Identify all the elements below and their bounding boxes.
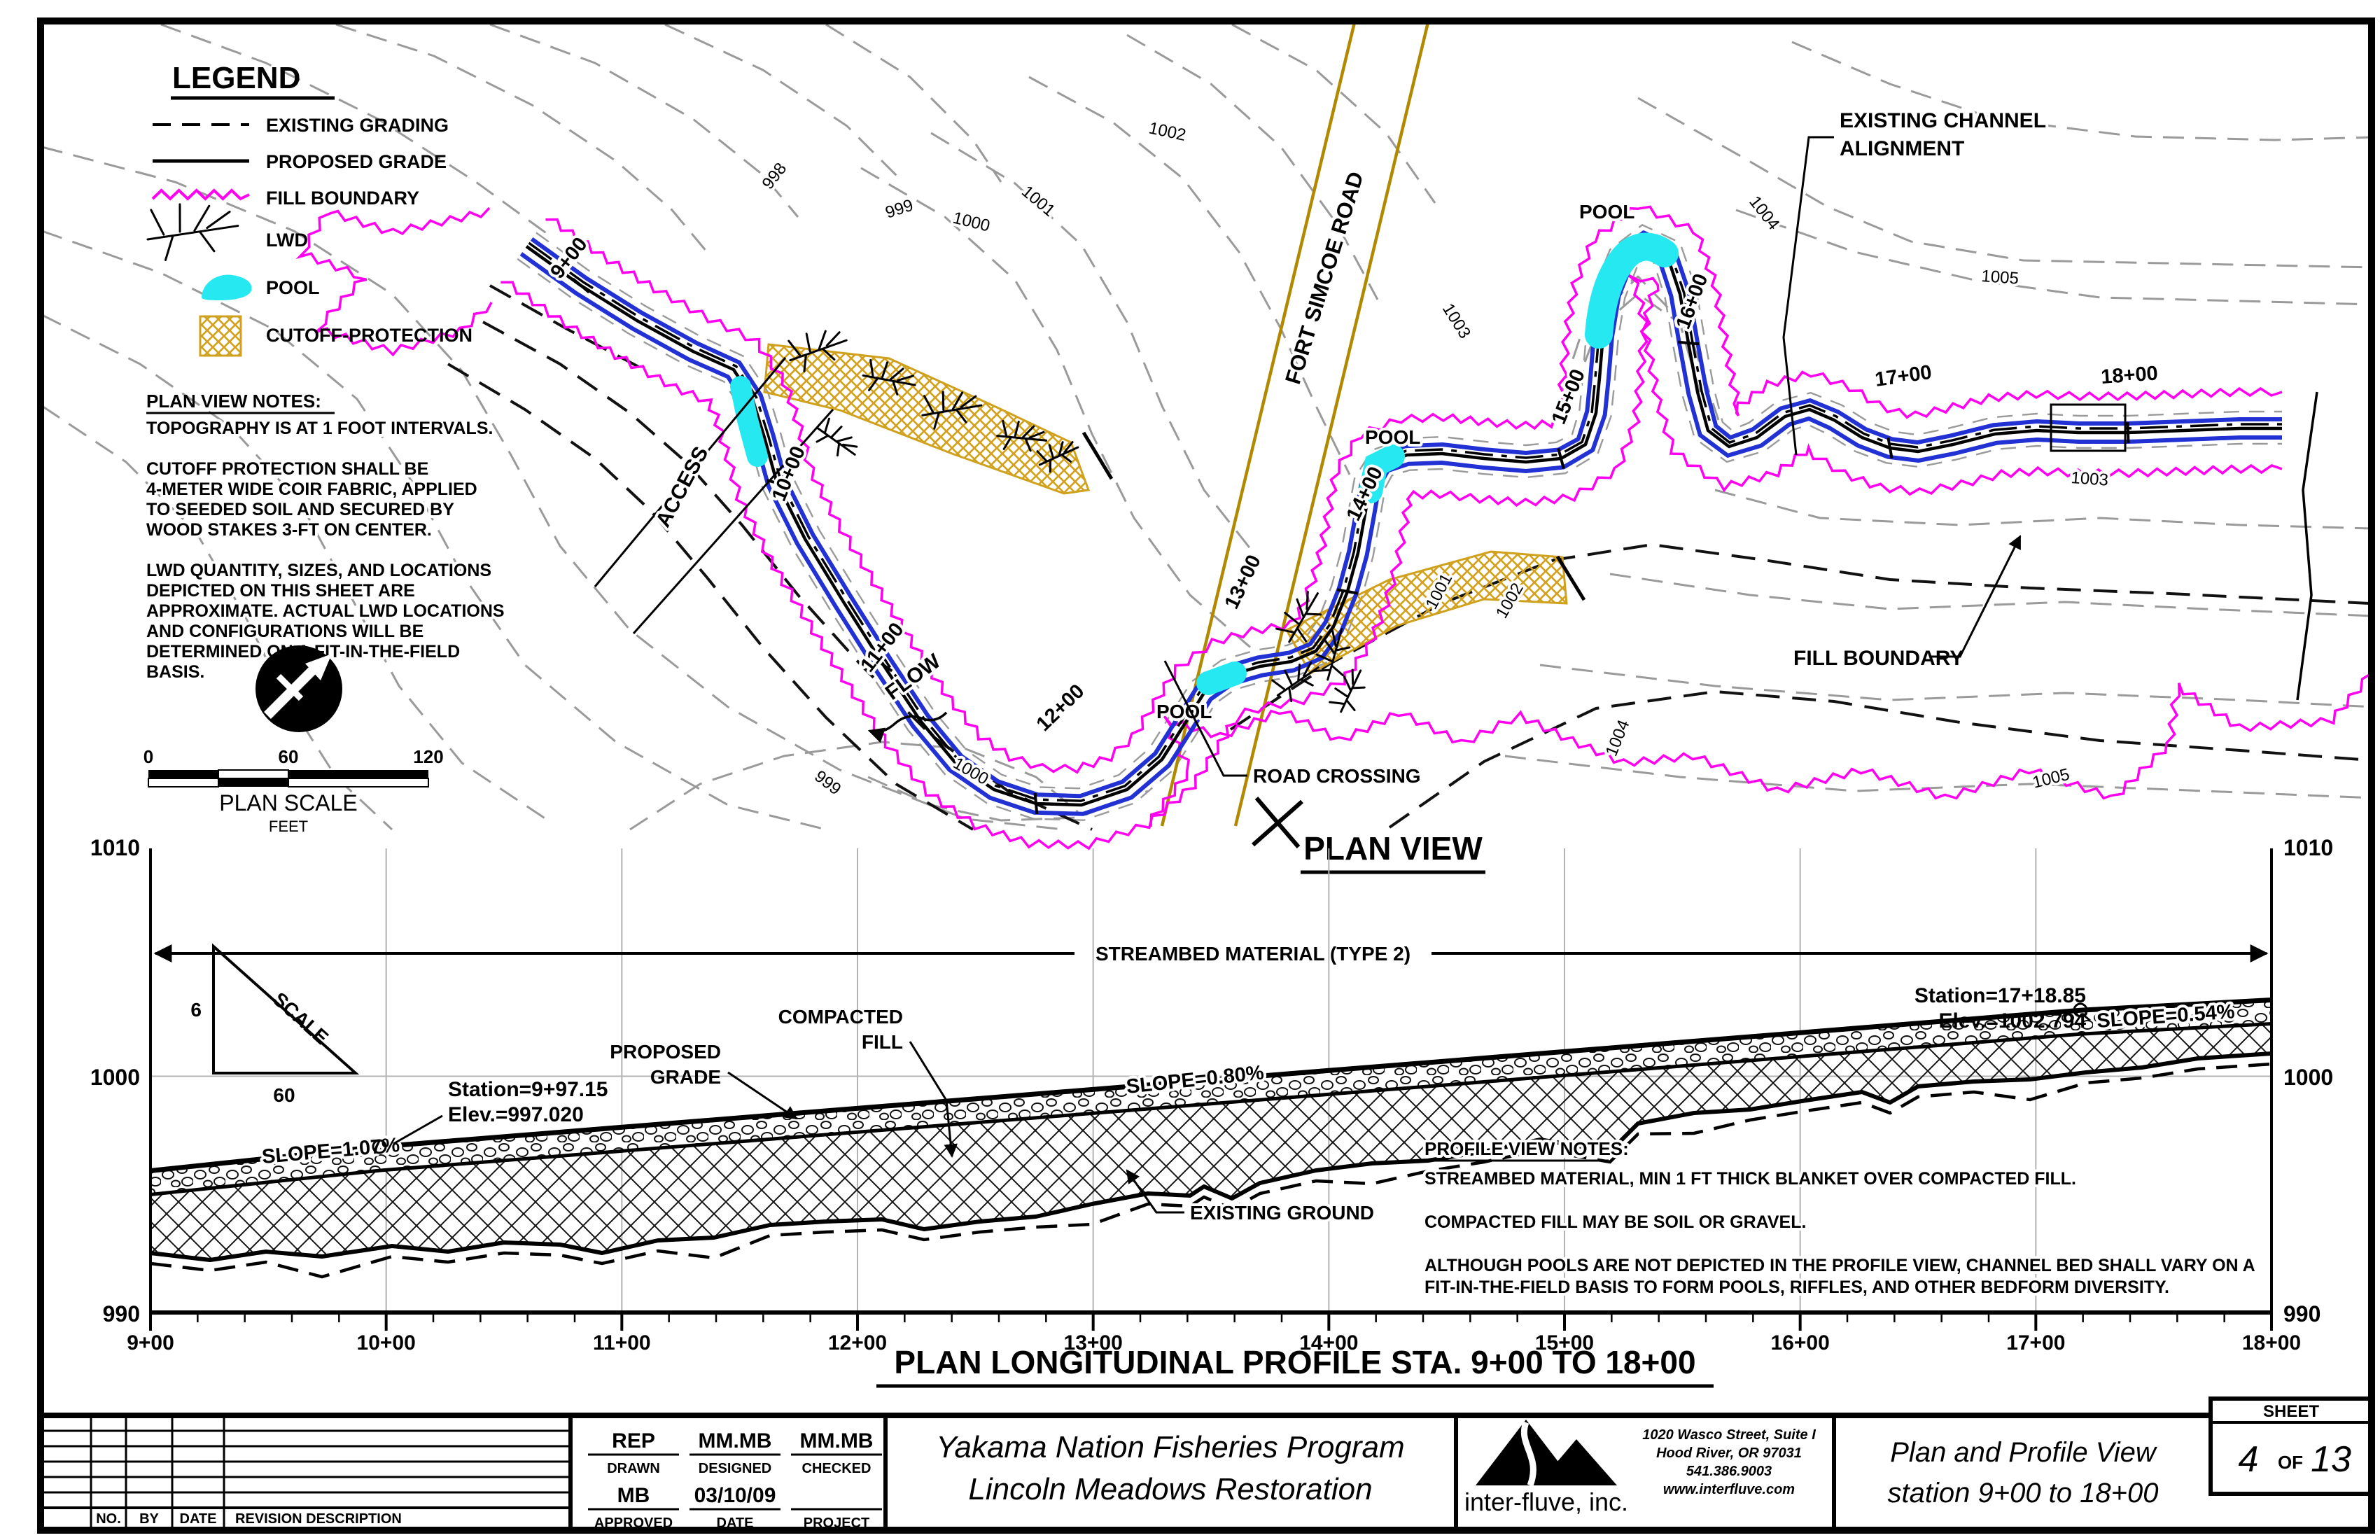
profile-station-label: 10+00 — [357, 1331, 416, 1354]
contour-label: 1005 — [1981, 267, 2019, 288]
legend-item-label: CUTOFF-PROTECTION — [266, 325, 472, 346]
legend-item-label: PROPOSED GRADE — [266, 151, 447, 172]
address-line: www.interfluve.com — [1663, 1482, 1795, 1497]
plan-notes-title: PLAN VIEW NOTES: — [146, 391, 321, 412]
existing-ground-label: EXISTING GROUND — [1190, 1202, 1374, 1224]
cutoff-protection-symbol — [200, 316, 241, 356]
plan-view-title: PLAN VIEW — [1303, 830, 1483, 867]
rev-col-desc: REVISION DESCRIPTION — [235, 1511, 402, 1527]
project-title-line1: Yakama Nation Fisheries Program — [936, 1430, 1404, 1464]
drawing-sheet: LEGEND EXISTING GRADING PROPOSED GRADE F… — [0, 0, 2380, 1540]
designed-value: MM.MB — [699, 1429, 772, 1452]
sheet-number: 4 — [2239, 1439, 2259, 1480]
note-line: STREAMBED MATERIAL, MIN 1 FT THICK BLANK… — [1424, 1169, 2076, 1189]
breakpoint2-station: Station=17+18.85 — [1914, 984, 2086, 1007]
rev-col-date: DATE — [180, 1511, 217, 1527]
note-line: ALTHOUGH POOLS ARE NOT DEPICTED IN THE P… — [1424, 1256, 2255, 1275]
sheet-title-line1: Plan and Profile View — [1890, 1437, 2158, 1468]
profile-station-label: 17+00 — [2006, 1331, 2065, 1354]
sheet-number-box: SHEET 4 OF 13 — [2211, 1399, 2372, 1494]
rev-col-by: BY — [139, 1511, 159, 1527]
scale-tick-0: 0 — [143, 746, 153, 767]
sheet-label: SHEET — [2263, 1402, 2319, 1421]
plan-scale-label: PLAN SCALE — [219, 790, 357, 815]
elev-label-left: 1010 — [90, 835, 140, 860]
proposed-grade-label: PROPOSED — [610, 1041, 721, 1063]
compacted-fill-label: COMPACTED — [778, 1006, 903, 1028]
company-name: inter-fluve, inc. — [1464, 1487, 1628, 1516]
station-tick — [2127, 422, 2128, 443]
drawn-label: DRAWN — [607, 1461, 660, 1476]
address-line: 1020 Wasco Street, Suite I — [1642, 1427, 1816, 1443]
approved-value: MB — [617, 1484, 650, 1507]
breakpoint2-elev: Elev.=1002.794 — [1939, 1009, 2087, 1032]
drawing-canvas: LEGEND EXISTING GRADING PROPOSED GRADE F… — [0, 0, 2380, 1540]
note-line: TO SEEDED SOIL AND SECURED BY — [146, 500, 454, 519]
legend-item-label: EXISTING GRADING — [266, 115, 449, 136]
elev-label-right: 990 — [2283, 1301, 2320, 1326]
plan-scale-units: FEET — [269, 818, 308, 835]
profile-station-label: 16+00 — [1771, 1331, 1830, 1354]
compacted-fill-label2: FILL — [862, 1031, 903, 1053]
note-line: CUTOFF PROTECTION SHALL BE — [146, 459, 428, 479]
plan-station-label: 18+00 — [2100, 362, 2158, 388]
note-line: TOPOGRAPHY IS AT 1 FOOT INTERVALS. — [146, 419, 493, 438]
address-line: Hood River, OR 97031 — [1656, 1445, 1802, 1461]
profile-title: PLAN LONGITUDINAL PROFILE STA. 9+00 TO 1… — [894, 1344, 1695, 1380]
road-crossing-label: ROAD CROSSING — [1253, 765, 1421, 787]
scale-tick-120: 120 — [413, 746, 443, 767]
note-line: AND CONFIGURATIONS WILL BE — [146, 622, 423, 641]
drawn-value: REP — [612, 1429, 655, 1452]
elev-label-right: 1010 — [2283, 835, 2333, 860]
note-line: APPROXIMATE. ACTUAL LWD LOCATIONS — [146, 601, 505, 621]
note-line: COMPACTED FILL MAY BE SOIL OR GRAVEL. — [1424, 1212, 1806, 1232]
profile-station-label: 12+00 — [828, 1331, 887, 1354]
station-tick — [1678, 342, 1699, 344]
designed-label: DESIGNED — [699, 1461, 771, 1476]
sheet-of: OF — [2278, 1452, 2303, 1473]
profile-station-label: 11+00 — [593, 1331, 651, 1354]
profile-station-label: 18+00 — [2242, 1331, 2301, 1354]
streambed-dim-label: STREAMBED MATERIAL (TYPE 2) — [1095, 943, 1410, 965]
pool — [1208, 673, 1235, 683]
address-line: 541.386.9003 — [1686, 1464, 1772, 1479]
checked-value: MM.MB — [800, 1429, 874, 1452]
scale-triangle-h: 60 — [273, 1084, 295, 1106]
profile-station-label: 9+00 — [127, 1331, 174, 1354]
checked-label: CHECKED — [802, 1461, 871, 1476]
fill-boundary-label: FILL BOUNDARY — [1793, 647, 1963, 670]
pool-label: POOL — [1365, 426, 1420, 448]
pool-label: POOL — [1156, 701, 1212, 722]
north-arrow-logo — [255, 645, 342, 732]
note-line: BASIS. — [146, 662, 204, 682]
pool-label: POOL — [1579, 201, 1634, 223]
breakpoint1-elev: Elev.=997.020 — [448, 1103, 584, 1126]
elev-label-right: 1000 — [2283, 1065, 2333, 1090]
rev-col-no: NO. — [96, 1511, 121, 1527]
existing-channel-alignment-label: EXISTING CHANNEL — [1840, 109, 2046, 132]
note-line: FIT-IN-THE-FIELD BASIS TO FORM POOLS, RI… — [1424, 1277, 2169, 1297]
existing-channel-alignment-label2: ALIGNMENT — [1840, 137, 1964, 160]
station-tick — [1035, 793, 1037, 814]
elev-label-left: 990 — [103, 1301, 140, 1326]
note-line: 4-METER WIDE COIR FABRIC, APPLIED — [146, 479, 477, 499]
sheet-total: 13 — [2311, 1439, 2351, 1480]
scale-tick-60: 60 — [279, 746, 299, 767]
project-title-line2: Lincoln Meadows Restoration — [968, 1472, 1372, 1506]
profile-notes-title: PROFILE VIEW NOTES: — [1424, 1138, 1629, 1159]
scale-triangle-v: 6 — [190, 999, 202, 1021]
sheet-title-line2: station 9+00 to 18+00 — [1888, 1478, 2159, 1508]
proposed-grade-label2: GRADE — [650, 1066, 721, 1088]
legend-item-label: FILL BOUNDARY — [266, 188, 419, 209]
legend-title: LEGEND — [172, 61, 300, 95]
note-line: WOOD STAKES 3-FT ON CENTER. — [146, 520, 432, 540]
legend-item-label: POOL — [266, 277, 320, 298]
date-value: 03/10/09 — [694, 1484, 776, 1507]
note-line: LWD QUANTITY, SIZES, AND LOCATIONS — [146, 561, 491, 580]
contour-label: 1003 — [2071, 468, 2109, 490]
legend-item-label: LWD — [266, 230, 308, 251]
elev-label-left: 1000 — [90, 1065, 140, 1090]
note-line: DEPICTED ON THIS SHEET ARE — [146, 581, 415, 601]
breakpoint1-station: Station=9+97.15 — [448, 1078, 608, 1101]
